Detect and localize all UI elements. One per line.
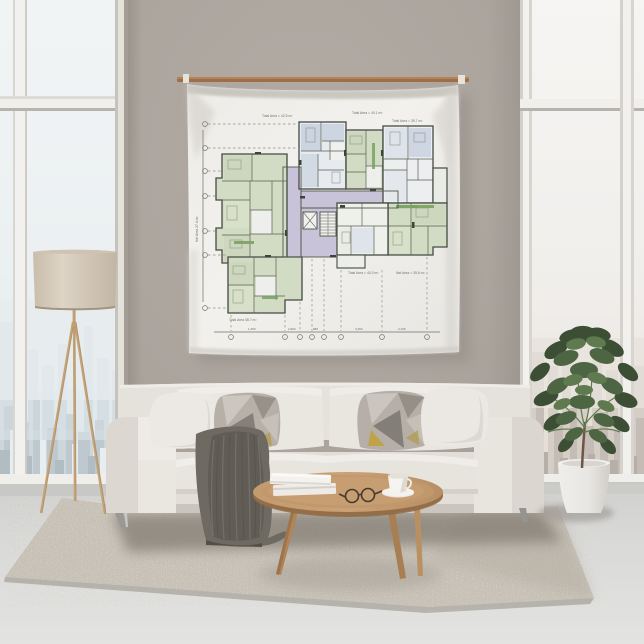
svg-text:1,450: 1,450 bbox=[248, 327, 256, 331]
svg-text:2,960: 2,960 bbox=[288, 327, 296, 331]
svg-text:2,135: 2,135 bbox=[398, 327, 406, 331]
svg-text:980: 980 bbox=[313, 327, 318, 331]
svg-text:Net Area = 35.6 m²: Net Area = 35.6 m² bbox=[396, 271, 425, 275]
svg-text:Total Area 38.7 m²: Total Area 38.7 m² bbox=[229, 318, 257, 322]
svg-text:Total Area = 39.7 m²: Total Area = 39.7 m² bbox=[392, 119, 423, 123]
svg-text:Net Area 27.4 m²: Net Area 27.4 m² bbox=[195, 215, 199, 242]
svg-text:Total Area = 40.1 m²: Total Area = 40.1 m² bbox=[352, 111, 383, 115]
svg-text:Total Area = 40.3 m²: Total Area = 40.3 m² bbox=[348, 271, 379, 275]
svg-text:Total Area = 42.5 m²: Total Area = 42.5 m² bbox=[262, 114, 293, 118]
svg-text:3,460: 3,460 bbox=[355, 327, 363, 331]
